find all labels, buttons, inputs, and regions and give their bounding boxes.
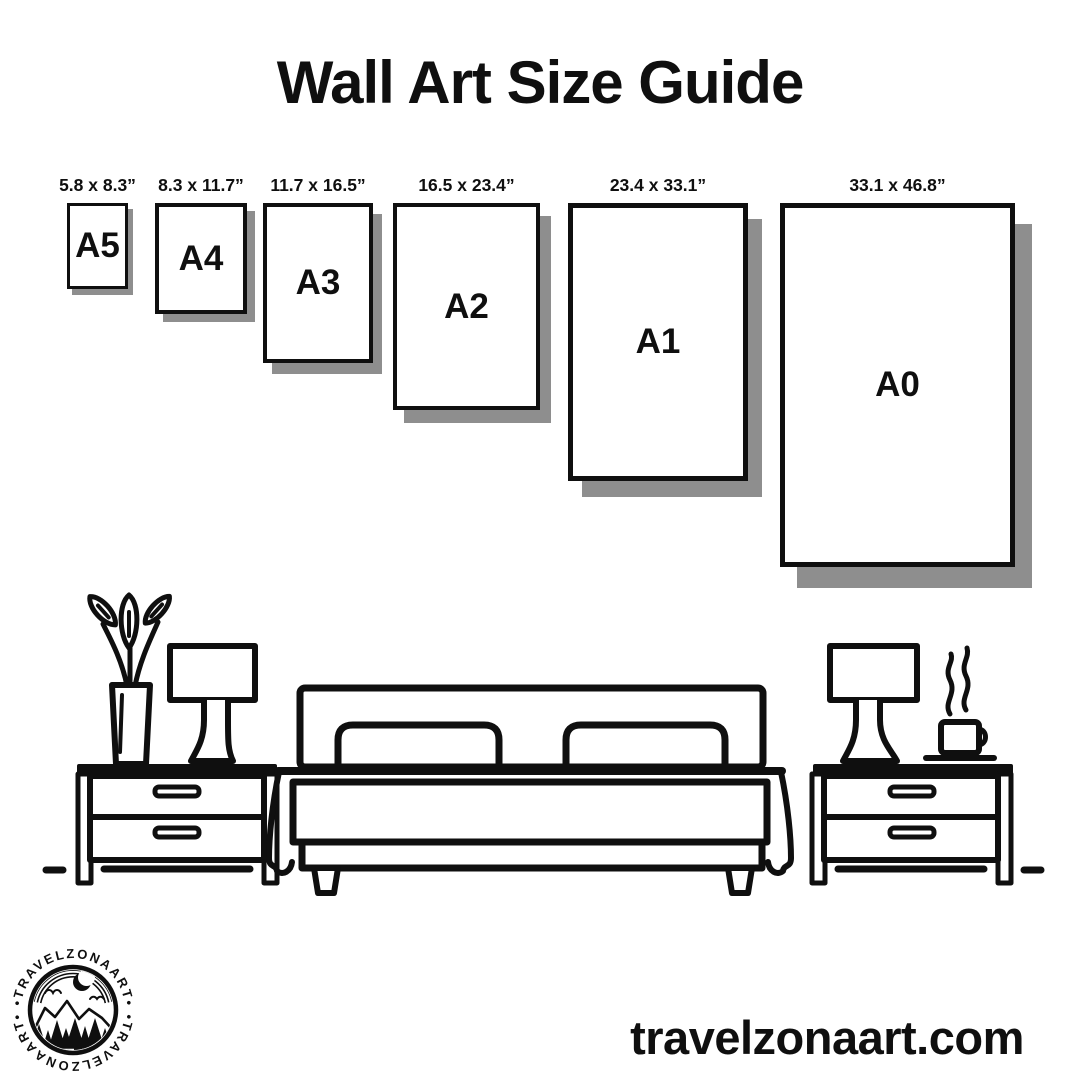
coffee-cup-icon (926, 648, 994, 758)
nightstand-right (812, 764, 1013, 883)
bed-icon (269, 688, 791, 893)
size-dimensions-a3: 11.7 x 16.5” (270, 175, 365, 195)
size-code-a4: A4 (179, 239, 224, 279)
size-card-a1: 23.4 x 33.1” A1 (568, 175, 748, 481)
paper-rect-a5: A5 (67, 203, 128, 289)
paper-rect-a2: A2 (393, 203, 540, 410)
bed-leg (314, 868, 338, 893)
website-url: travelzonaart.com (577, 1010, 1077, 1065)
size-card-a0: 33.1 x 46.8” A0 (780, 175, 1015, 567)
size-card-a5: 5.8 x 8.3” A5 (67, 175, 128, 289)
size-code-a5: A5 (75, 226, 120, 266)
bedroom-illustration (0, 590, 1080, 910)
blanket-drape-right (768, 772, 791, 873)
table-lamp-left-icon (170, 646, 255, 761)
page-title: Wall Art Size Guide (0, 48, 1080, 117)
size-code-a2: A2 (444, 287, 489, 327)
paper-rect-a0: A0 (780, 203, 1015, 567)
drawer-handle-icon (890, 787, 934, 796)
size-dimensions-a0: 33.1 x 46.8” (849, 175, 945, 195)
size-card-a4: 8.3 x 11.7” A4 (155, 175, 247, 314)
size-dimensions-a4: 8.3 x 11.7” (158, 175, 244, 195)
size-dimensions-a1: 23.4 x 33.1” (610, 175, 706, 195)
nightstand-left (77, 764, 277, 883)
paper-rect-a1: A1 (568, 203, 748, 481)
size-guide-infographic: Wall Art Size Guide 5.8 x 8.3” A5 8.3 x … (0, 0, 1080, 1080)
paper-rect-a3: A3 (263, 203, 373, 363)
size-code-a1: A1 (636, 322, 681, 362)
size-card-a3: 11.7 x 16.5” A3 (263, 175, 373, 363)
size-code-a0: A0 (875, 365, 920, 405)
size-dimensions-a2: 16.5 x 23.4” (418, 175, 514, 195)
plant-vase-icon (85, 592, 174, 764)
drawer-handle-icon (155, 787, 199, 796)
drawer-handle-icon (155, 828, 199, 837)
steam-icon (948, 654, 952, 714)
drawer-handle-icon (890, 828, 934, 837)
size-dimensions-a5: 5.8 x 8.3” (59, 175, 136, 195)
table-lamp-right-icon (830, 646, 917, 761)
paper-rect-a4: A4 (155, 203, 247, 314)
pillow-icon (338, 725, 499, 767)
brand-logo: •TRAVELZONAART• •TRAVELZONAART• (12, 942, 134, 1076)
size-card-a2: 16.5 x 23.4” A2 (393, 175, 540, 410)
steam-icon (964, 648, 968, 710)
pillow-icon (566, 725, 725, 767)
size-code-a3: A3 (296, 263, 341, 303)
bed-leg (728, 868, 752, 893)
